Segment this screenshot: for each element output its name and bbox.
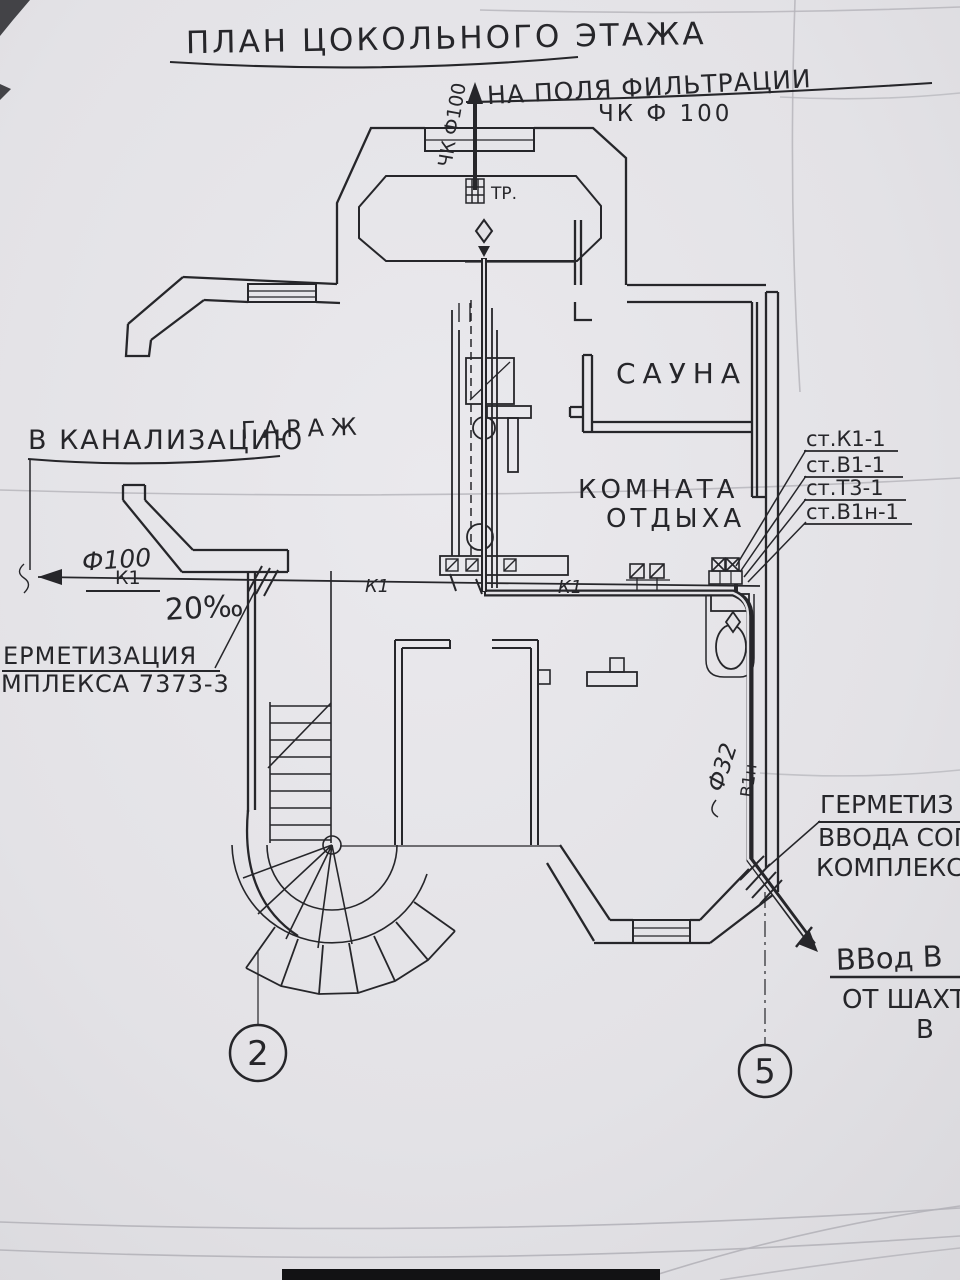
chk-f100-label: ЧК Ф 100 — [598, 101, 732, 127]
seal-right-label-1: ГЕРМЕТИЗ — [820, 790, 953, 819]
axis-number-2: 2 — [247, 1034, 269, 1074]
room-label-lounge-2: ОТДЫХА — [606, 504, 745, 534]
room-label-lounge-1: КОМНАТА — [578, 475, 738, 505]
stack-label-k1: ст.К1-1 — [806, 427, 886, 451]
stack-label-v1n: ст.В1н-1 — [806, 500, 899, 524]
slope-label: 20‰ — [164, 589, 244, 628]
seal-right-label-3: КОМПЛЕКСА — [816, 853, 960, 882]
paper-background — [0, 0, 960, 1280]
seal-left-label-1: ЕРМЕТИЗАЦИЯ — [3, 642, 197, 670]
k1-label-right: К1 — [558, 577, 582, 598]
scan-bottom-bar — [282, 1269, 660, 1280]
floor-plan-drawing: ПЛАН ЦОКОЛЬНОГО ЭТАЖА НА ПОЛЯ ФИЛЬТРАЦИИ… — [0, 0, 960, 1280]
k1-label-mid: К1 — [365, 576, 389, 597]
inlet-label-3: В — [916, 1015, 934, 1045]
axis-number-5: 5 — [754, 1052, 776, 1092]
inlet-label-2: ОТ ШАХТ — [842, 985, 960, 1015]
seal-left-label-2: МПЛЕКСА 7373-3 — [1, 670, 230, 698]
stack-label-t3: ст.Т3-1 — [806, 476, 884, 500]
seal-right-label-2: ВВОДА СОГ — [818, 823, 960, 852]
room-label-sauna: САУНА — [616, 357, 747, 390]
scanned-plan-sheet: ПЛАН ЦОКОЛЬНОГО ЭТАЖА НА ПОЛЯ ФИЛЬТРАЦИИ… — [0, 0, 960, 1280]
to-sewer-label: В КАНАЛИЗАЦИЮ — [28, 425, 304, 456]
k1-label-left: К1 — [115, 567, 141, 589]
tr-label: ТР. — [490, 184, 517, 204]
inlet-label-1: ВВод В — [835, 939, 943, 977]
stack-label-v1: ст.В1-1 — [806, 453, 885, 477]
